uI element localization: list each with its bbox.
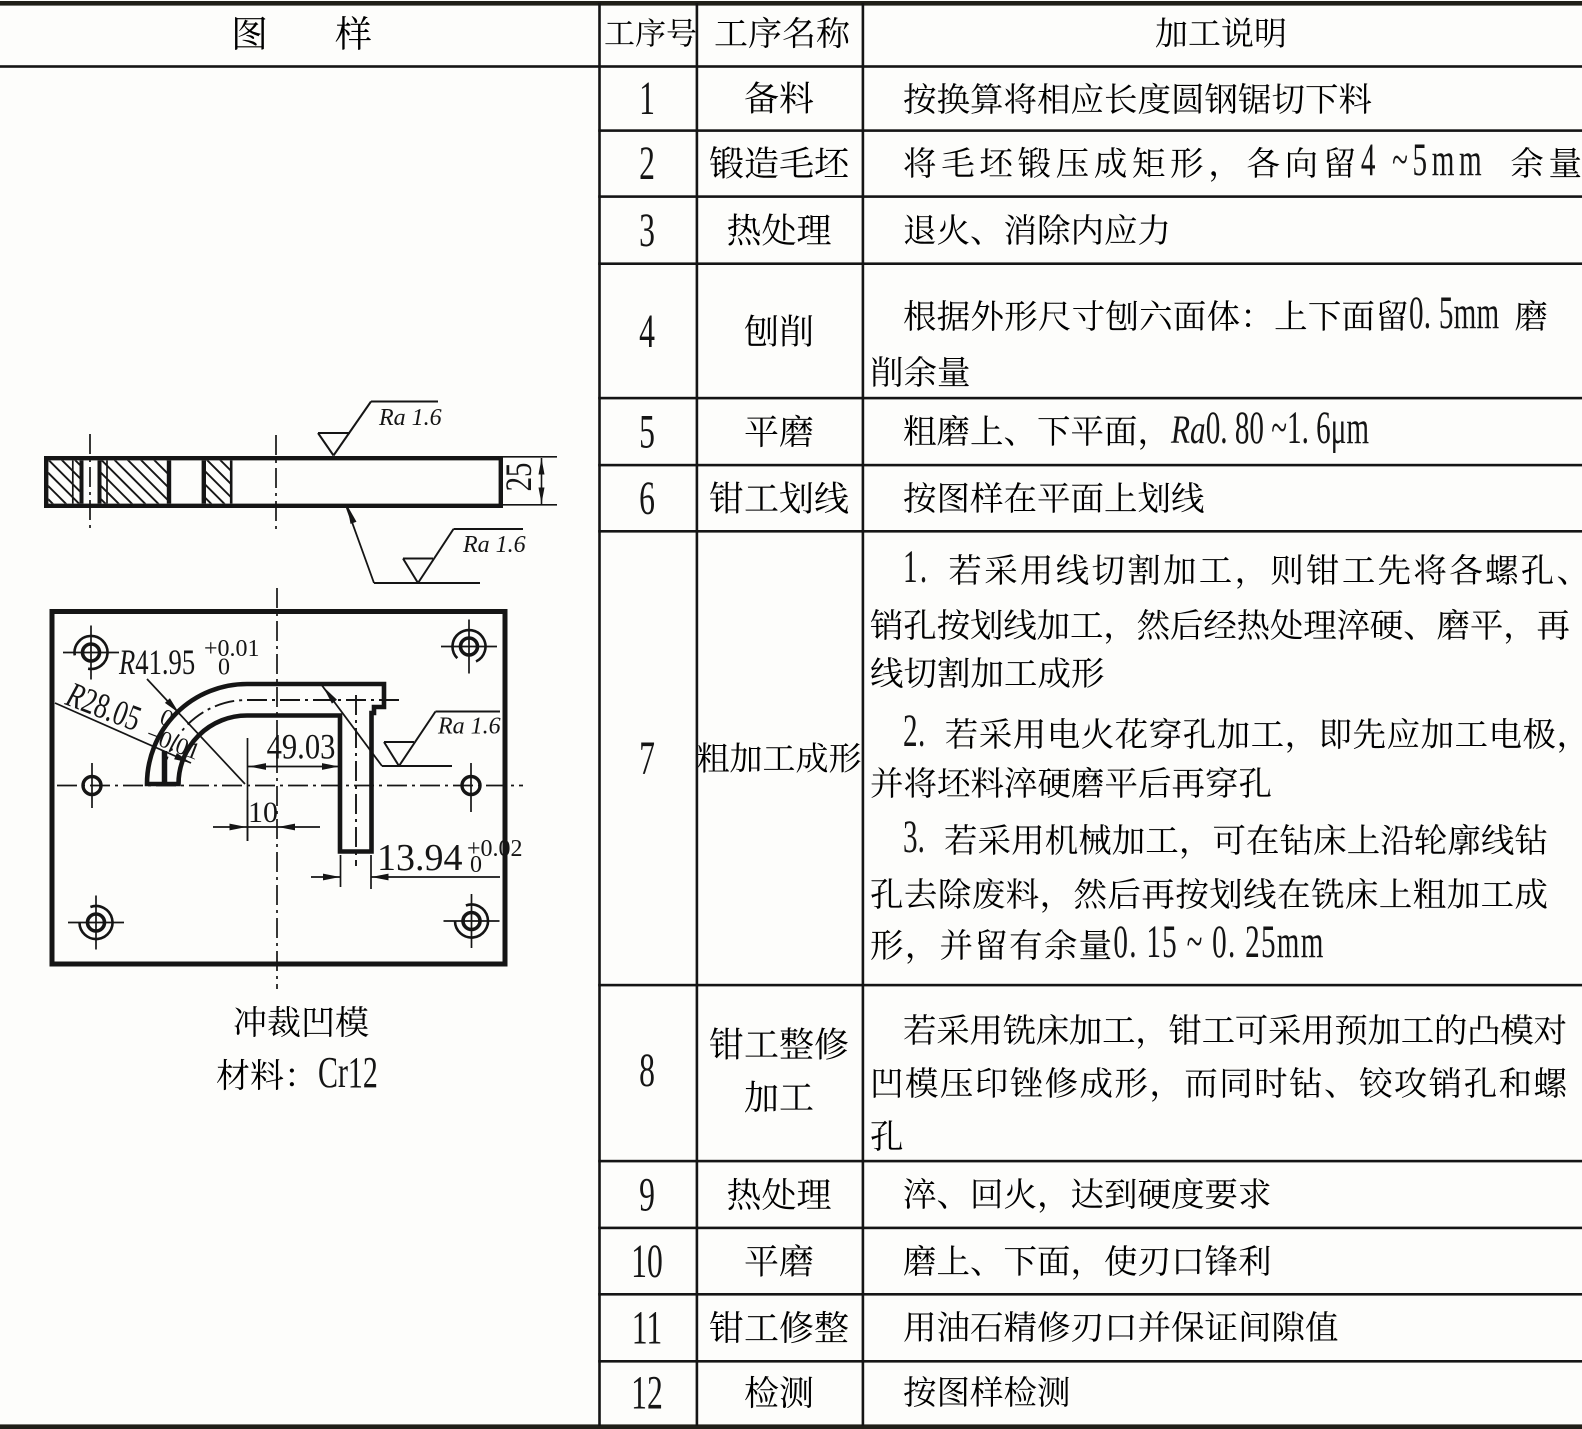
svg-text:0. 15 ~ 0. 25mm: 0. 15 ~ 0. 25mm <box>1113 916 1324 968</box>
svg-text:1.: 1. <box>903 541 929 593</box>
svg-text:R41.95: R41.95 <box>118 642 195 682</box>
svg-text:Ra 1.6: Ra 1.6 <box>378 405 442 431</box>
svg-text:10: 10 <box>248 796 278 829</box>
svg-text:11: 11 <box>632 1301 663 1354</box>
svg-text:Ra: Ra <box>1170 408 1206 453</box>
svg-text:0. 80 ~1. 6μm: 0. 80 ~1. 6μm <box>1206 402 1369 454</box>
svg-text:10: 10 <box>631 1234 663 1287</box>
svg-text:+0.01: +0.01 <box>204 636 260 662</box>
svg-text:5: 5 <box>639 405 655 458</box>
svg-text:0: 0 <box>470 852 482 878</box>
svg-text:0. 5mm: 0. 5mm <box>1409 287 1499 339</box>
svg-text:4 ~5mm: 4 ~5mm <box>1361 134 1486 186</box>
svg-text:2.: 2. <box>903 705 926 757</box>
svg-text:3.: 3. <box>903 811 925 863</box>
svg-text:8: 8 <box>639 1043 655 1096</box>
svg-text:6: 6 <box>639 471 655 524</box>
svg-text:25: 25 <box>499 463 540 492</box>
svg-text:9: 9 <box>639 1168 655 1221</box>
svg-text:4: 4 <box>639 304 655 357</box>
svg-text:13.94: 13.94 <box>377 837 463 879</box>
svg-text:3: 3 <box>639 203 655 256</box>
svg-text:Cr12: Cr12 <box>318 1048 378 1097</box>
svg-text:0: 0 <box>218 655 230 681</box>
svg-text:12: 12 <box>631 1366 663 1419</box>
svg-text:Ra 1.6: Ra 1.6 <box>437 714 501 740</box>
svg-text:49.03: 49.03 <box>267 727 336 767</box>
svg-text:1: 1 <box>639 71 655 124</box>
svg-text:2: 2 <box>639 136 655 189</box>
svg-text:Ra 1.6: Ra 1.6 <box>462 532 526 558</box>
svg-text:7: 7 <box>639 731 655 784</box>
